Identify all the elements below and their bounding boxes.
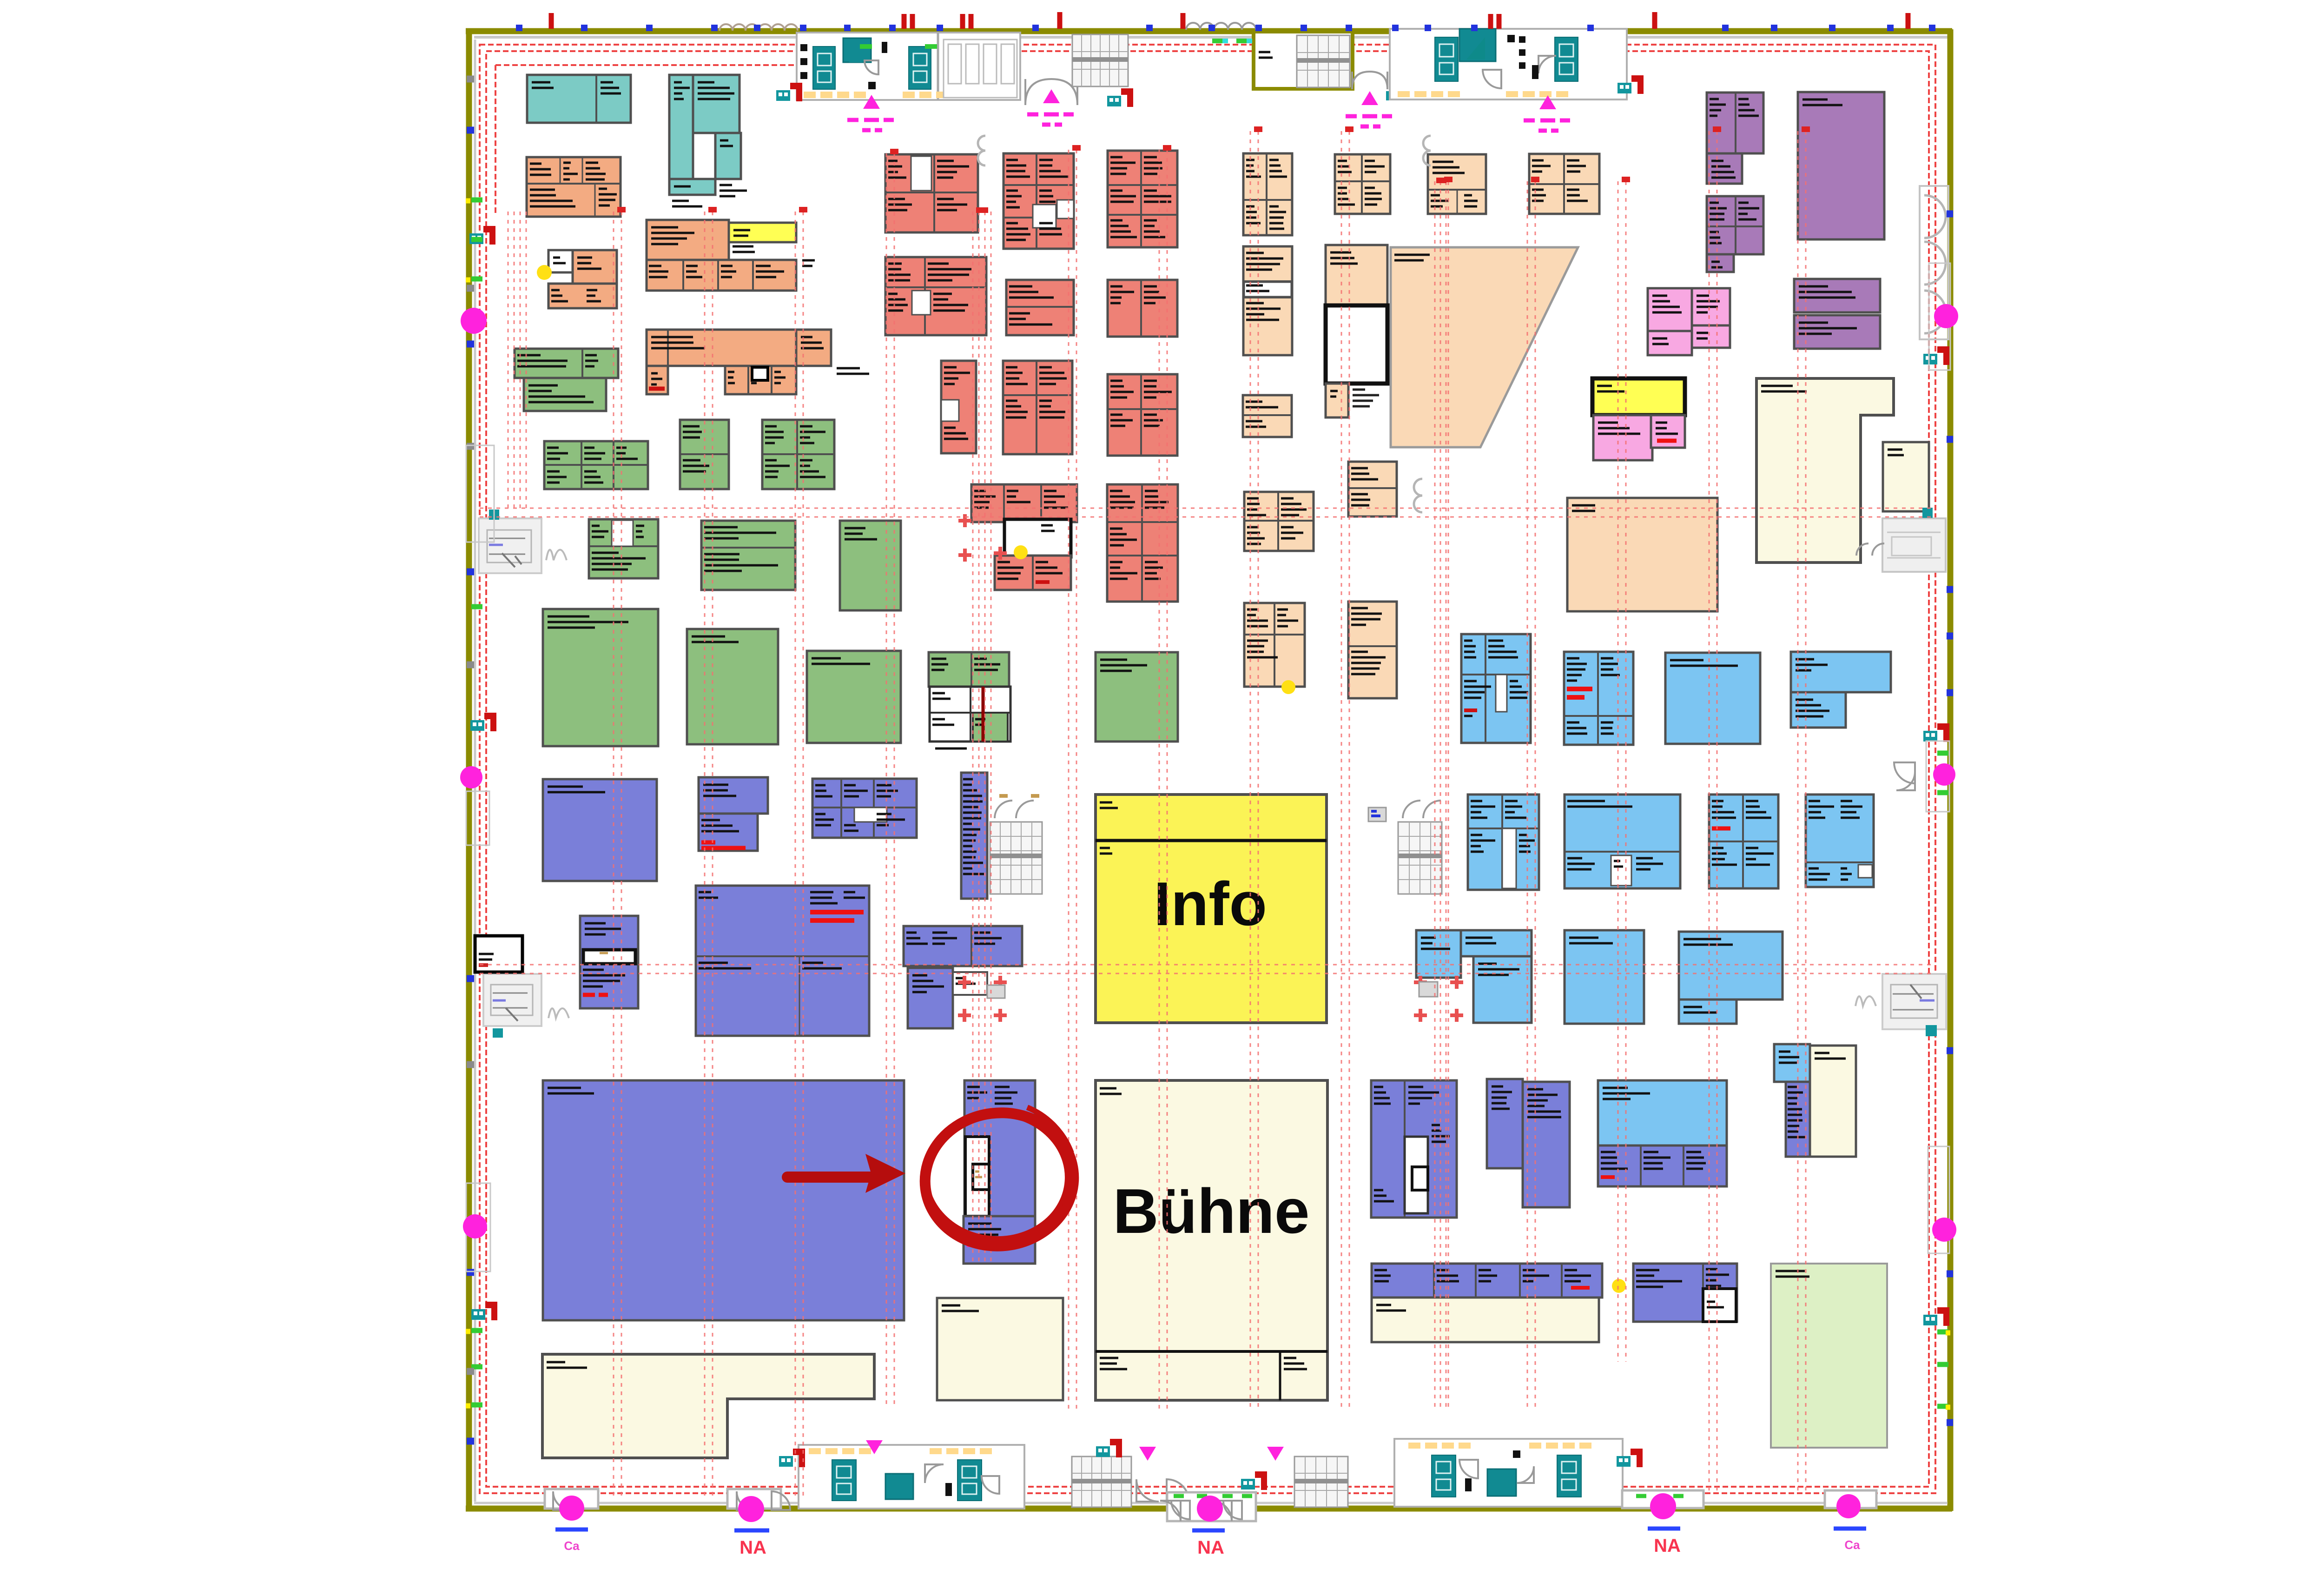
svg-text:Bühne: Bühne bbox=[1113, 1176, 1309, 1246]
svg-text:Ca: Ca bbox=[1844, 1538, 1860, 1552]
svg-text:NA: NA bbox=[1654, 1536, 1681, 1556]
svg-text:NA: NA bbox=[1197, 1537, 1224, 1558]
svg-text:Ca: Ca bbox=[564, 1539, 580, 1553]
svg-text:NA: NA bbox=[739, 1537, 766, 1558]
